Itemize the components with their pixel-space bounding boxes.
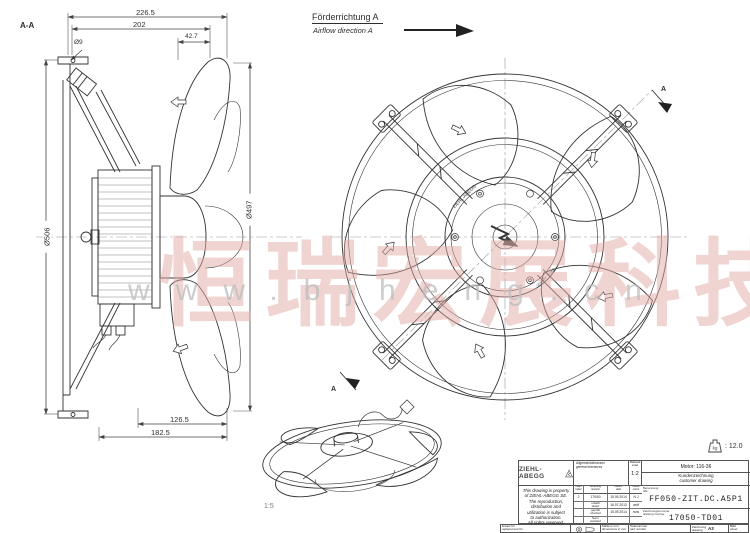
technical-drawing-sheet: ZIEHL-ABEGG ZIEHL-ABEGG — [0, 0, 750, 533]
logo-cell: ZIEHL-ABEGG — [519, 461, 574, 486]
doc-type-cell: Kundenzeichnung customer drawing — [642, 473, 750, 486]
rev-header-index: Index index — [574, 486, 584, 494]
rev-row-cell: erstellt drawn — [584, 502, 608, 510]
dim-hole-d9: Ø9 — [74, 40, 83, 47]
side-view — [58, 57, 243, 418]
tolerances-cell: Allgemeintoleranzen general tolerances — [574, 461, 629, 486]
format-value: A3 — [708, 526, 714, 531]
rev-row-cell — [574, 517, 584, 525]
weight-badge: kg : 12.0 — [707, 438, 743, 454]
kg-weight-icon: kg — [707, 438, 723, 454]
sheet-cell: Blatt sheet — [729, 525, 749, 533]
revision-table: Index index Änderung revision Datum date… — [574, 486, 642, 524]
doc-type-en: customer drawing — [642, 478, 750, 483]
replacement-cell: Ersatz für replacement for — [501, 525, 571, 533]
units-cell: Maße in mm dimensions in mm — [601, 525, 629, 533]
part-number-cell: Teilenummer part number — [629, 525, 691, 533]
dim-182-5: 182.5 — [151, 429, 170, 437]
rev-row-cell — [630, 517, 642, 525]
hdr-en: date — [608, 489, 629, 492]
title-block: ZIEHL-ABEGG Allgemeintoleranzen general … — [518, 460, 749, 524]
hub-brand-text: ZIEHL-ABEGG — [452, 183, 478, 209]
front-view: ZIEHL-ABEGG ZIEHL-ABEGG — [335, 74, 668, 408]
rev-row-cell: 15.09.2014 — [608, 509, 630, 517]
part-name-cell: Benennung title FF050-ZIT.DC.A5P1 — [642, 486, 750, 509]
engineering-drawing: ZIEHL-ABEGG ZIEHL-ABEGG — [0, 0, 750, 533]
dim-126-5: 126.5 — [170, 416, 189, 424]
rev-row-cell: 175/00 — [584, 494, 608, 502]
projection-symbol-icon — [574, 526, 598, 533]
property-notice: This drawing is property of ZIEHL-ABEGG … — [519, 486, 574, 524]
scale-label-en: scale — [629, 464, 641, 467]
section-marker-a-bottom: A — [331, 386, 336, 393]
rev-row-cell: wolf — [630, 502, 642, 510]
dim-d497: Ø497 — [245, 194, 253, 226]
rev-row-cell — [608, 517, 630, 525]
hdr-en: revision — [584, 489, 607, 492]
replacement-en: replacement for — [502, 528, 570, 531]
drawing-number-cell: Zeichnungsnummer drawing number 17050-TD… — [642, 509, 750, 524]
rev-header-revision: Änderung revision — [584, 486, 608, 494]
dim-d506: Ø506 — [43, 221, 51, 253]
notice-line: of ZIEHL-ABEGG SE. — [519, 493, 573, 498]
rev-header-date: Datum date — [608, 486, 630, 494]
iso-scale-label: 1:5 — [264, 503, 274, 510]
rev-row-cell — [574, 502, 584, 510]
format-label-en: drawing — [692, 529, 706, 532]
airflow-arrow-icon — [404, 24, 474, 37]
ziehl-abegg-logo-icon — [565, 469, 573, 478]
part-no-en: part number — [630, 528, 690, 531]
rev-header-name: Name name — [630, 486, 642, 494]
dim-42-7: 42.7 — [185, 34, 198, 41]
rev-row-cell: rons — [630, 509, 642, 517]
rev-en: drawn — [584, 505, 607, 508]
sheet-label-en: sheet — [730, 528, 749, 531]
rev-row-cell: N.J — [630, 494, 642, 502]
airflow-direction-de: Förderrichtung A — [312, 13, 383, 24]
rev-en: checked — [584, 512, 607, 515]
airflow-direction-en: Airflow direction A — [313, 27, 373, 35]
motor-designation: Motor: 116-36 — [681, 464, 712, 470]
rev-row-cell: 16.07.2013 — [608, 502, 630, 510]
motor-cell: Motor: 116-36 — [642, 461, 750, 473]
rev-row-cell: 2 — [574, 494, 584, 502]
centerlines — [36, 58, 688, 420]
title-label-en: title — [643, 490, 658, 493]
projection-cell — [571, 525, 601, 533]
title-block-footer: Ersatz für replacement for Maße in mm di… — [500, 524, 749, 533]
dim-226: 226.5 — [136, 9, 155, 17]
rev-row-cell: Norm standard — [584, 517, 608, 525]
units-en: dimensions in mm — [602, 528, 628, 531]
hdr-en: name — [630, 489, 642, 492]
hdr-en: index — [574, 489, 583, 492]
section-label: A-A — [20, 22, 34, 30]
kg-unit-text: kg — [713, 446, 718, 451]
format-cell: Zeichnung drawing A3 — [691, 525, 729, 533]
rev-row-cell: geprüft checked — [584, 509, 608, 517]
rev-row-cell — [574, 509, 584, 517]
brand-logo-text: ZIEHL-ABEGG — [519, 466, 563, 480]
drawing-no-label-en: drawing number — [643, 513, 670, 516]
hub-brand-text-2: ZIEHL-ABEGG — [535, 267, 555, 287]
scale-cell: Maßstab scale 1:2 — [629, 461, 642, 486]
tolerances-en: general tolerances — [576, 466, 626, 470]
scale-value: 1:2 — [629, 471, 641, 477]
part-name: FF050-ZIT.DC.A5P1 — [642, 495, 750, 504]
isometric-view — [256, 396, 446, 504]
rev-row-cell: 15.09.2014 — [608, 494, 630, 502]
rev-en: standard — [584, 520, 607, 523]
dim-202: 202 — [133, 21, 146, 29]
section-marker-a-top: A — [661, 86, 666, 93]
weight-value: : 12.0 — [725, 443, 743, 450]
